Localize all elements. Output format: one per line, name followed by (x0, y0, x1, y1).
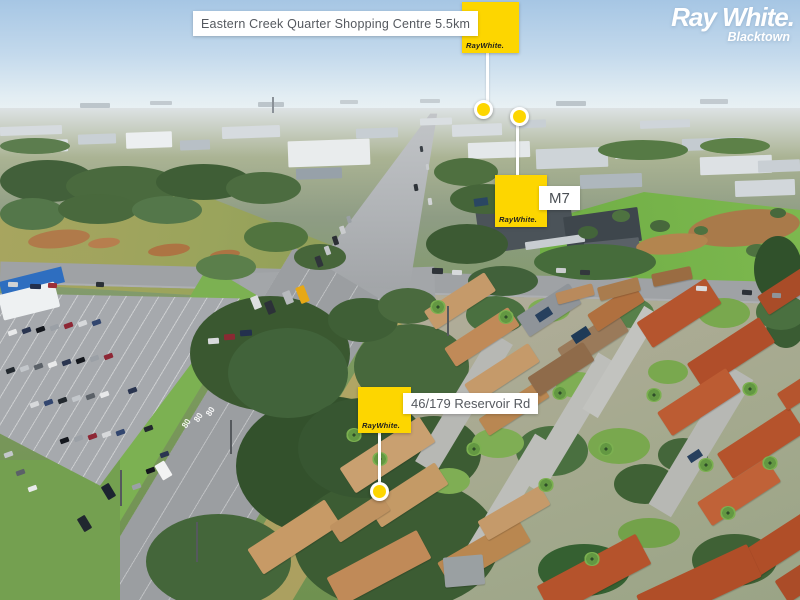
warehouse-roof (78, 133, 116, 144)
tree (534, 244, 656, 280)
warehouse-roof (580, 173, 642, 189)
car (452, 270, 462, 275)
car (420, 146, 424, 152)
warehouse-roof (452, 123, 502, 137)
car (772, 293, 781, 298)
distant-building (150, 101, 172, 105)
logo-office-name: Blacktown (671, 31, 794, 44)
car (96, 282, 104, 287)
distant-building (700, 99, 728, 104)
property-address-label: 46/179 Reservoir Rd (403, 393, 538, 414)
car (48, 283, 57, 288)
tree (770, 208, 786, 218)
warehouse-roof (288, 139, 371, 168)
warehouse-roof (222, 125, 280, 139)
tree (58, 194, 138, 224)
warehouse-roof (468, 141, 531, 159)
warehouse-roof (296, 167, 342, 180)
palm-tree (762, 456, 778, 470)
distant-building (258, 102, 284, 107)
light-pole (196, 522, 198, 562)
distant-building (556, 101, 586, 106)
distant-building (80, 103, 110, 108)
car (208, 338, 219, 345)
shopping-centre-label: Eastern Creek Quarter Shopping Centre 5.… (193, 11, 478, 36)
car (224, 334, 235, 341)
ray-white-badge-wordmark: RayWhite. (466, 42, 504, 50)
light-pole (272, 97, 274, 113)
palm-tree (646, 388, 662, 402)
palm-tree (466, 442, 482, 456)
light-pole (447, 306, 449, 336)
car (428, 198, 433, 205)
tree (612, 210, 630, 222)
tree (0, 198, 65, 230)
warehouse-roof (126, 131, 173, 149)
warehouse-roof (758, 159, 800, 172)
tree (196, 254, 256, 280)
connector-line-m7 (516, 124, 519, 178)
car (30, 284, 41, 289)
ray-white-badge-wordmark: RayWhite. (362, 422, 400, 430)
tree (244, 222, 308, 252)
distant-building (340, 100, 358, 104)
palm-tree (584, 552, 600, 566)
map-pin-shopping-centre-icon (474, 100, 493, 119)
tree (0, 138, 70, 154)
car (432, 268, 443, 274)
light-pole (120, 470, 122, 506)
palm-tree (498, 310, 514, 324)
lawn (588, 428, 650, 464)
palm-tree (742, 382, 758, 396)
ray-white-badge-wordmark: RayWhite. (499, 216, 537, 224)
car (426, 164, 430, 170)
palm-tree (430, 300, 446, 314)
palm-tree (598, 442, 614, 456)
map-pin-property-icon (370, 482, 389, 501)
palm-tree (698, 458, 714, 472)
m7-motorway-label: M7 (539, 186, 580, 210)
palm-tree (720, 506, 736, 520)
palm-tree (552, 386, 568, 400)
light-pole (230, 420, 232, 454)
palm-tree (538, 478, 554, 492)
house-roof (443, 554, 485, 587)
warehouse-roof (735, 179, 796, 197)
car (8, 282, 18, 287)
tree (598, 140, 688, 160)
map-pin-m7-icon (510, 107, 529, 126)
tree (132, 196, 202, 224)
tree (226, 172, 301, 204)
distant-building (420, 99, 440, 103)
car (240, 330, 252, 337)
aerial-photo: 80 80 80 RayWhite. RayWhite. RayWhite. E… (0, 0, 800, 600)
warehouse-roof (180, 139, 210, 150)
tree (650, 220, 670, 232)
car (580, 270, 590, 275)
logo-brand-name: Ray White. (671, 4, 794, 30)
car (742, 290, 752, 296)
warehouse-roof (420, 117, 452, 125)
tree (434, 158, 498, 186)
tree (700, 138, 770, 154)
car (556, 268, 566, 273)
tree (578, 226, 598, 239)
warehouse-roof (356, 127, 398, 138)
tree (426, 224, 508, 264)
lawn (648, 360, 688, 384)
tree (694, 226, 708, 235)
car (696, 286, 707, 292)
ray-white-blacktown-logo: Ray White. Blacktown (671, 4, 794, 44)
